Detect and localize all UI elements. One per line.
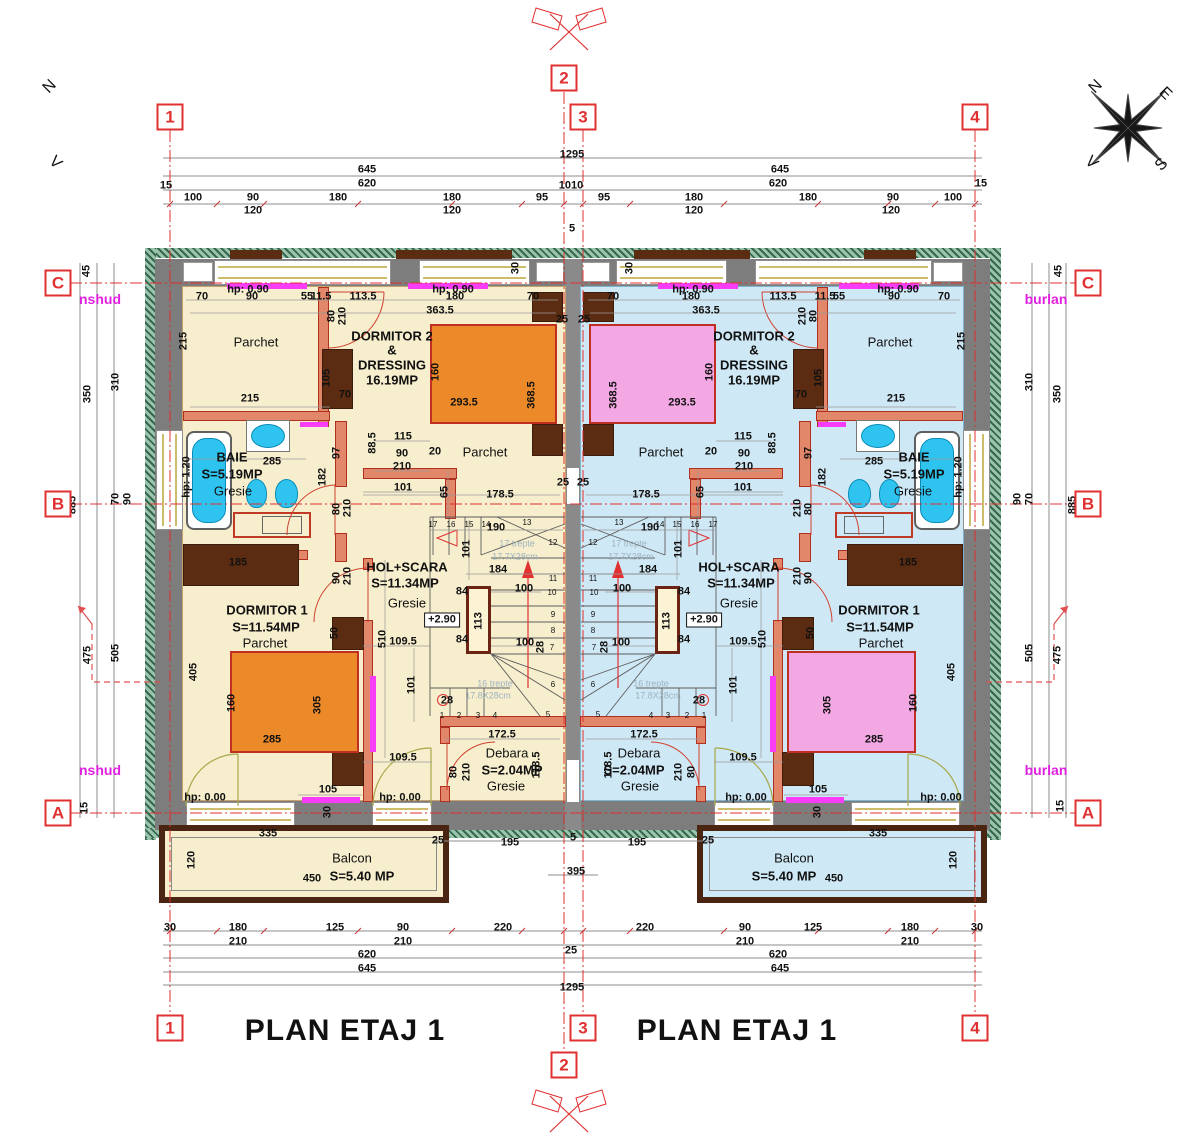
unit-dims-label: 172.5 — [630, 730, 658, 741]
unit-dims-label: 70 — [196, 292, 208, 303]
unit-dims-label: 210 — [462, 763, 473, 781]
unit-dims-label: 84 — [678, 587, 690, 598]
unit-stair_notes-label: 17.8X28cm — [465, 692, 511, 701]
unit-rooms-label: DRESSING — [358, 359, 426, 372]
unit-rooms-label: 120 — [949, 851, 960, 869]
dims-left-label: 45 — [82, 265, 93, 277]
unit-dims-label: 80 — [809, 310, 820, 322]
unit-hp-label: hp: 0.90 — [672, 285, 714, 296]
unit-hp-label: hp: 1.20 — [182, 456, 193, 498]
unit-dims-label: 25 — [577, 478, 589, 489]
dims-left-label: 310 — [111, 373, 122, 391]
unit-treads-label: 8 — [591, 627, 595, 635]
dims-left-label: 350 — [83, 385, 94, 403]
unit-dims-label: 100 — [613, 584, 631, 595]
unit-dims-label: 28 — [536, 641, 547, 653]
dims-bottom-label: 30 — [164, 923, 176, 934]
unit-treads-label: 16 — [447, 521, 456, 529]
unit-stair_notes-label: 17 trepte — [611, 540, 647, 549]
dims-right-label: 505 — [1025, 644, 1036, 662]
dims-top-label: 95 — [536, 193, 548, 204]
unit-rooms-label: 120 — [187, 851, 198, 869]
unit-dims-label: 215 — [179, 332, 190, 350]
unit-hp-label: hp: 0.90 — [432, 285, 474, 296]
dims-top-label: 645 — [358, 165, 376, 176]
dims-left-label: 15 — [80, 802, 91, 814]
unit-dims-label: 101 — [407, 676, 418, 694]
unit-hp-label: hp: 0.90 — [877, 285, 919, 296]
unit-treads-label: 1 — [702, 712, 706, 720]
unit-dims-label: 113 — [662, 612, 673, 630]
dims-bottom-label: 210 — [229, 937, 247, 948]
dims-bottom-label: 210 — [901, 937, 919, 948]
unit-dims-label: 105 — [814, 369, 825, 387]
unit-treads-label: 4 — [493, 712, 497, 720]
unit-dims-label: 178.5 — [486, 490, 514, 501]
dims-bottom-label: 180 — [229, 923, 247, 934]
unit-hp-label: hp: 0.00 — [920, 793, 962, 804]
unit-dims-label: 210 — [343, 499, 354, 517]
unit-treads-label: 11 — [549, 575, 557, 583]
unit-dims-label: 80 — [804, 503, 815, 515]
unit-hp-label: hp: 0.90 — [227, 285, 269, 296]
unit-treads-label: 3 — [476, 712, 480, 720]
unit-dims-label: 101 — [674, 540, 685, 558]
unit-dims-label: 70 — [607, 292, 619, 303]
unit-rooms-label: DORMITOR 2 — [713, 330, 794, 343]
unit-treads-label: 7 — [592, 644, 596, 652]
dims-bottom-label: 1295 — [560, 983, 584, 994]
unit-rooms-label: Parchet — [463, 446, 508, 459]
unit-stair_notes-label: 16 trepte — [633, 680, 669, 689]
side_notes-left_top-label: nshud — [79, 292, 121, 306]
dims-bottom-label: 210 — [394, 937, 412, 948]
side_notes-right_bottom-label: burlan — [1025, 763, 1068, 777]
dims-left-label: 70 — [111, 493, 122, 505]
unit-dims-label: 30 — [625, 262, 636, 274]
grid-axis-bubble: 3 — [570, 104, 597, 131]
unit-dims-label: 105 — [319, 785, 337, 796]
unit-dims-label: 160 — [909, 694, 920, 712]
unit-dims-label: 113.5 — [350, 292, 377, 303]
unit-rooms-label: BAIE — [216, 451, 247, 464]
dims-right-label: 475 — [1053, 646, 1064, 664]
unit-dims-label: 172.5 — [488, 730, 516, 741]
unit-dims-label: 101 — [729, 676, 740, 694]
dims-right-label: 310 — [1025, 373, 1036, 391]
unit-rooms-label: HOL+SCARA — [698, 561, 779, 574]
unit-hp-label: hp: 0.00 — [725, 793, 767, 804]
unit-dims-label: 80 — [449, 766, 460, 778]
unit-treads-label: 15 — [673, 521, 682, 529]
dims-top-label: 180 — [799, 193, 817, 204]
unit-dims-label: 368.5 — [609, 381, 620, 409]
unit-dims-label: 101 — [394, 483, 412, 494]
side_notes-left_bottom-label: nshud — [79, 763, 121, 777]
unit-dims-label: 30 — [511, 262, 522, 274]
unit-dims-label: 184 — [639, 565, 657, 576]
unit-stair_notes-label: 16 trepte — [477, 680, 513, 689]
unit-treads-label: 12 — [589, 539, 598, 547]
dims-top-label: 645 — [771, 165, 789, 176]
unit-dims-label: 210 — [393, 462, 411, 473]
dims-bottom-label: 220 — [494, 923, 512, 934]
unit-hp-label: hp: 1.20 — [954, 456, 965, 498]
unit-dims-label: 70 — [795, 390, 807, 401]
unit-treads-label: 8 — [551, 627, 555, 635]
unit-treads-label: 11 — [589, 575, 597, 583]
unit-dims-label: 210 — [343, 567, 354, 585]
grid-axis-bubble: A — [45, 800, 72, 827]
unit-dims-label: 184 — [489, 565, 507, 576]
dims-bottom-label: 620 — [358, 950, 376, 961]
unit-treads-label: 12 — [549, 539, 558, 547]
unit-stair_notes-label: 17 trepte — [499, 540, 535, 549]
unit-rooms-label: S=2.04MP — [603, 764, 664, 777]
grid-axis-bubble: B — [1075, 491, 1102, 518]
unit-stair_notes-label: 17.8X28cm — [635, 692, 681, 701]
dims-top-label: 95 — [598, 193, 610, 204]
dims-top-label: 620 — [769, 179, 787, 190]
plan-title-right: PLAN ETAJ 1 — [637, 1016, 837, 1046]
unit-treads-label: 9 — [551, 611, 555, 619]
unit-rooms-label: S=5.19MP — [883, 468, 944, 481]
dims-bottom-label: 645 — [358, 964, 376, 975]
unit-rooms-label: Debara — [618, 747, 661, 760]
grid-axis-bubble: 1 — [157, 1015, 184, 1042]
unit-dims-label: 305 — [823, 696, 834, 714]
unit-dims-label: 50 — [330, 627, 341, 639]
unit-dims-label: 100 — [516, 638, 534, 649]
dims-top-label: 15 — [975, 179, 987, 190]
side_notes-right_top-label: burlan — [1025, 292, 1068, 306]
unit-dims-label: 100 — [515, 584, 533, 595]
unit-rooms-label: 450 — [825, 874, 843, 885]
unit-dims-label: 28 — [693, 696, 705, 707]
unit-dims-label: 363.5 — [692, 306, 720, 317]
dims-top-label: 120 — [443, 206, 461, 217]
unit-rooms-label: Gresie — [720, 597, 758, 610]
dims-bottom-label: 210 — [736, 937, 754, 948]
dims-bottom-label: 25 — [565, 946, 577, 957]
unit-dims-label: 109.5 — [389, 637, 417, 648]
unit-dims-label: 28 — [441, 696, 453, 707]
unit-rooms-label: Debara — [486, 747, 529, 760]
unit-rooms-label: Gresie — [894, 485, 932, 498]
unit-dims-label: 510 — [378, 630, 389, 648]
unit-rooms-label: 25 — [432, 836, 444, 847]
dims-top-label: 120 — [882, 206, 900, 217]
unit-treads-label: 7 — [550, 644, 554, 652]
unit-rooms-label: Gresie — [214, 485, 252, 498]
unit-rooms-label: Parchet — [243, 637, 288, 650]
unit-dims-label: 11.5 — [815, 292, 836, 303]
unit-dims-label: 363.5 — [426, 306, 454, 317]
unit-dims-label: 20 — [429, 447, 441, 458]
unit-rooms-label: HOL+SCARA — [366, 561, 447, 574]
unit-dims-label: 88.5 — [368, 432, 379, 453]
grid-axis-bubble: C — [45, 270, 72, 297]
grid-axis-bubble: 2 — [551, 65, 578, 92]
dims-top-label: 5 — [569, 224, 575, 235]
dims-top-label: 15 — [160, 181, 172, 192]
unit-rooms-label: 335 — [869, 829, 887, 840]
unit-rooms-label: 25 — [702, 836, 714, 847]
grid-axis-bubble: 4 — [962, 1015, 989, 1042]
dims-right-label: 90 — [1013, 493, 1024, 505]
unit-dims-label: 285 — [865, 735, 883, 746]
unit-dims-label: 25 — [556, 315, 568, 326]
unit-dims-label: 11.5 — [311, 292, 332, 303]
dims-bottom-label: 195 — [501, 838, 519, 849]
unit-rooms-label: Parchet — [868, 336, 913, 349]
unit-rooms-label: Parchet — [639, 446, 684, 459]
unit-treads-label: 10 — [548, 589, 557, 597]
dims-right-label: 70 — [1025, 493, 1036, 505]
unit-dims-label: 210 — [735, 462, 753, 473]
unit-treads-label: 17 — [429, 521, 438, 529]
unit-dims-label: 90 — [396, 449, 408, 460]
unit-dims-label: 70 — [938, 292, 950, 303]
unit-treads-label: 10 — [590, 589, 599, 597]
dims-bottom-label: 220 — [636, 923, 654, 934]
unit-dims-label: 109.5 — [389, 753, 417, 764]
unit-rooms-label: S=11.34MP — [371, 577, 439, 590]
unit-dims-label: 70 — [339, 390, 351, 401]
dims-right-label: 15 — [1056, 800, 1067, 812]
dims-top-label: 1010 — [559, 181, 583, 192]
unit-rooms-label: DORMITOR 2 — [351, 330, 432, 343]
unit-dims-label: 185 — [229, 558, 247, 569]
unit-dims-label: 115 — [394, 432, 412, 443]
unit-rooms-label: Parchet — [234, 336, 279, 349]
unit-rooms-label: & — [749, 344, 758, 357]
unit-dims-label: 182 — [818, 468, 829, 486]
unit-dims-label: 105 — [809, 785, 827, 796]
unit-treads-label: 6 — [551, 681, 555, 689]
dims-right-label: 350 — [1053, 385, 1064, 403]
unit-treads-label: 4 — [649, 712, 653, 720]
unit-rooms-label: Balcon — [332, 852, 372, 865]
unit-rooms-label: BAIE — [898, 451, 929, 464]
dims-top-label: 100 — [944, 193, 962, 204]
unit-hp-label: +2.90 — [424, 613, 460, 628]
unit-dims-label: 25 — [557, 478, 569, 489]
unit-rooms-label: DORMITOR 1 — [226, 604, 307, 617]
dims-top-label: 180 — [685, 193, 703, 204]
unit-dims-label: 101 — [462, 540, 473, 558]
dims-bottom-label: 645 — [771, 964, 789, 975]
unit-dims-label: 293.5 — [668, 398, 696, 409]
unit-dims-label: 65 — [440, 486, 451, 498]
unit-rooms-label: Gresie — [621, 780, 659, 793]
dims-left-label: 475 — [83, 646, 94, 664]
unit-rooms-label: S=11.54MP — [232, 621, 300, 634]
grid-axis-bubble: 2 — [551, 1052, 578, 1079]
unit-hp-label: +2.90 — [686, 613, 722, 628]
grid-axis-bubble: 1 — [157, 104, 184, 131]
grid-axis-bubble: B — [45, 491, 72, 518]
unit-dims-label: 20 — [705, 447, 717, 458]
unit-dims-label: 25 — [578, 315, 590, 326]
unit-treads-label: 1 — [440, 712, 444, 720]
unit-dims-label: 30 — [813, 806, 824, 818]
unit-dims-label: 182 — [318, 468, 329, 486]
unit-rooms-label: 450 — [303, 874, 321, 885]
unit-dims-label: 101 — [734, 483, 752, 494]
unit-dims-label: 293.5 — [450, 398, 478, 409]
unit-dims-label: 109.5 — [729, 637, 757, 648]
unit-dims-label: 210 — [793, 499, 804, 517]
unit-treads-label: 17 — [709, 521, 718, 529]
grid-axis-bubble: 3 — [570, 1015, 597, 1042]
plan-linework — [0, 0, 1200, 1147]
unit-treads-label: 13 — [523, 519, 532, 527]
unit-treads-label: 5 — [546, 711, 550, 719]
unit-dims-label: 215 — [957, 332, 968, 350]
unit-treads-label: 15 — [465, 521, 474, 529]
unit-rooms-label: DRESSING — [720, 359, 788, 372]
unit-dims-label: 97 — [332, 447, 343, 459]
unit-dims-label: 510 — [758, 630, 769, 648]
unit-rooms-label: S=5.19MP — [201, 468, 262, 481]
unit-hp-label: hp: 0.00 — [184, 793, 226, 804]
unit-treads-label: 14 — [482, 521, 491, 529]
unit-dims-label: 368.5 — [527, 381, 538, 409]
unit-treads-label: 2 — [685, 712, 689, 720]
unit-dims-label: 178.5 — [632, 490, 660, 501]
dims-right-label: 45 — [1054, 265, 1065, 277]
grid-axis-bubble: A — [1075, 800, 1102, 827]
unit-rooms-label: 335 — [259, 829, 277, 840]
unit-rooms-label: Gresie — [487, 780, 525, 793]
dims-left-label: 90 — [123, 493, 134, 505]
unit-dims-label: 97 — [804, 447, 815, 459]
unit-rooms-label: Gresie — [388, 597, 426, 610]
unit-dims-label: 285 — [263, 735, 281, 746]
plan-title-left: PLAN ETAJ 1 — [245, 1016, 445, 1046]
dims-top-label: 90 — [887, 193, 899, 204]
unit-dims-label: 185 — [899, 558, 917, 569]
unit-treads-label: 9 — [591, 611, 595, 619]
unit-dims-label: 100 — [612, 638, 630, 649]
dims-bottom-label: 125 — [804, 923, 822, 934]
unit-dims-label: 405 — [189, 663, 200, 681]
grid-axis-bubble: C — [1075, 270, 1102, 297]
unit-stair_notes-label: 17.7X28cm — [492, 553, 538, 562]
unit-dims-label: 28 — [600, 641, 611, 653]
unit-rooms-label: 16.19MP — [728, 374, 780, 387]
dims-bottom-label: 90 — [397, 923, 409, 934]
dims-top-label: 100 — [184, 193, 202, 204]
floor-plan-canvas: 1295645645156201010620151009018018095951… — [0, 0, 1200, 1147]
dims-top-label: 120 — [244, 206, 262, 217]
unit-dims-label: 30 — [323, 806, 334, 818]
unit-dims-label: 105 — [322, 369, 333, 387]
unit-dims-label: 80 — [687, 766, 698, 778]
dims-bottom-label: 125 — [326, 923, 344, 934]
unit-treads-label: 16 — [691, 521, 700, 529]
unit-rooms-label: 16.19MP — [366, 374, 418, 387]
dims-bottom-label: 620 — [769, 950, 787, 961]
unit-treads-label: 2 — [457, 712, 461, 720]
unit-treads-label: 3 — [666, 712, 670, 720]
unit-dims-label: 65 — [696, 486, 707, 498]
dims-bottom-label: 395 — [567, 867, 585, 878]
dims-top-label: 120 — [685, 206, 703, 217]
unit-dims-label: 210 — [338, 307, 349, 325]
unit-dims-label: 84 — [456, 635, 468, 646]
unit-dims-label: 90 — [804, 572, 815, 584]
unit-dims-label: 285 — [263, 457, 281, 468]
dims-bottom-label: 195 — [628, 838, 646, 849]
unit-dims-label: 109.5 — [729, 753, 757, 764]
unit-dims-label: 405 — [947, 663, 958, 681]
unit-dims-label: 115 — [734, 432, 752, 443]
unit-dims-label: 160 — [227, 694, 238, 712]
dims-top-label: 180 — [443, 193, 461, 204]
unit-dims-label: 88.5 — [768, 432, 779, 453]
dims-top-label: 90 — [247, 193, 259, 204]
unit-stair_notes-label: 17.7X28cm — [608, 553, 654, 562]
unit-treads-label: 6 — [591, 681, 595, 689]
unit-dims-label: 90 — [738, 449, 750, 460]
dims-bottom-label: 5 — [570, 833, 576, 844]
unit-rooms-label: S=5.40 MP — [330, 870, 395, 883]
unit-dims-label: 215 — [241, 394, 259, 405]
unit-rooms-label: S=11.34MP — [707, 577, 775, 590]
unit-dims-label: 210 — [674, 763, 685, 781]
unit-dims-label: 113.5 — [770, 292, 797, 303]
grid-axis-bubble: 4 — [962, 104, 989, 131]
unit-dims-label: 305 — [313, 696, 324, 714]
unit-dims-label: 70 — [527, 292, 539, 303]
unit-treads-label: 5 — [596, 711, 600, 719]
unit-dims-label: 215 — [887, 394, 905, 405]
unit-dims-label: 84 — [678, 635, 690, 646]
unit-dims-label: 84 — [456, 587, 468, 598]
unit-dims-label: 210 — [793, 567, 804, 585]
unit-treads-label: 14 — [656, 521, 665, 529]
unit-hp-label: hp: 0.00 — [379, 793, 421, 804]
unit-dims-label: 160 — [705, 363, 716, 381]
unit-treads-label: 13 — [615, 519, 624, 527]
unit-rooms-label: S=5.40 MP — [752, 870, 817, 883]
dims-top-label: 1295 — [560, 150, 584, 161]
unit-rooms-label: S=11.54MP — [846, 621, 914, 634]
unit-rooms-label: S=2.04MP — [481, 764, 542, 777]
unit-dims-label: 210 — [798, 307, 809, 325]
unit-dims-label: 50 — [806, 627, 817, 639]
dims-bottom-label: 90 — [739, 923, 751, 934]
unit-rooms-label: Parchet — [859, 637, 904, 650]
dims-left-label: 505 — [111, 644, 122, 662]
dims-bottom-label: 180 — [901, 923, 919, 934]
unit-dims-label: 160 — [431, 363, 442, 381]
unit-rooms-label: & — [387, 344, 396, 357]
unit-rooms-label: Balcon — [774, 852, 814, 865]
unit-rooms-label: DORMITOR 1 — [838, 604, 919, 617]
dims-bottom-label: 30 — [971, 923, 983, 934]
unit-dims-label: 113 — [474, 612, 485, 630]
dims-top-label: 180 — [329, 193, 347, 204]
unit-dims-label: 285 — [865, 457, 883, 468]
dims-top-label: 620 — [358, 179, 376, 190]
